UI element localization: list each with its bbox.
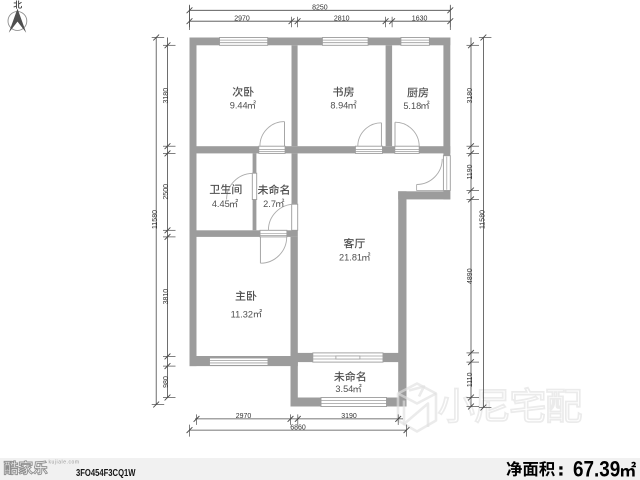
svg-text:2810: 2810 — [334, 16, 350, 23]
svg-text:3810: 3810 — [163, 289, 170, 305]
svg-text:1630: 1630 — [412, 16, 428, 23]
svg-text:11.32: 11.32 — [231, 309, 253, 319]
svg-text:2970: 2970 — [234, 16, 250, 23]
svg-text:3190: 3190 — [341, 413, 357, 420]
svg-text:11580: 11580 — [479, 210, 486, 229]
svg-text:8250: 8250 — [312, 5, 328, 12]
svg-text:kujiale.com: kujiale.com — [49, 460, 80, 466]
svg-text:980: 980 — [163, 376, 170, 388]
svg-text:2970: 2970 — [236, 413, 252, 420]
svg-text:3.54: 3.54 — [335, 384, 353, 394]
svg-text:2500: 2500 — [163, 184, 170, 200]
svg-text:4890: 4890 — [467, 268, 474, 284]
svg-text:67.39: 67.39 — [573, 457, 620, 480]
svg-text:11580: 11580 — [152, 210, 159, 229]
svg-text:3FO454F3CQ1W: 3FO454F3CQ1W — [76, 467, 136, 479]
svg-text:1110: 1110 — [467, 372, 474, 387]
svg-text:5.18: 5.18 — [403, 101, 421, 111]
svg-text:9.44: 9.44 — [230, 101, 248, 111]
svg-text:4.45: 4.45 — [212, 199, 230, 209]
svg-text:1190: 1190 — [467, 164, 474, 179]
svg-text:21.81: 21.81 — [339, 253, 362, 263]
svg-text:3180: 3180 — [163, 88, 170, 104]
svg-text:6860: 6860 — [290, 424, 306, 431]
svg-text:2.7: 2.7 — [263, 199, 276, 209]
svg-text:3180: 3180 — [467, 88, 474, 104]
svg-text:8.94: 8.94 — [330, 101, 348, 111]
